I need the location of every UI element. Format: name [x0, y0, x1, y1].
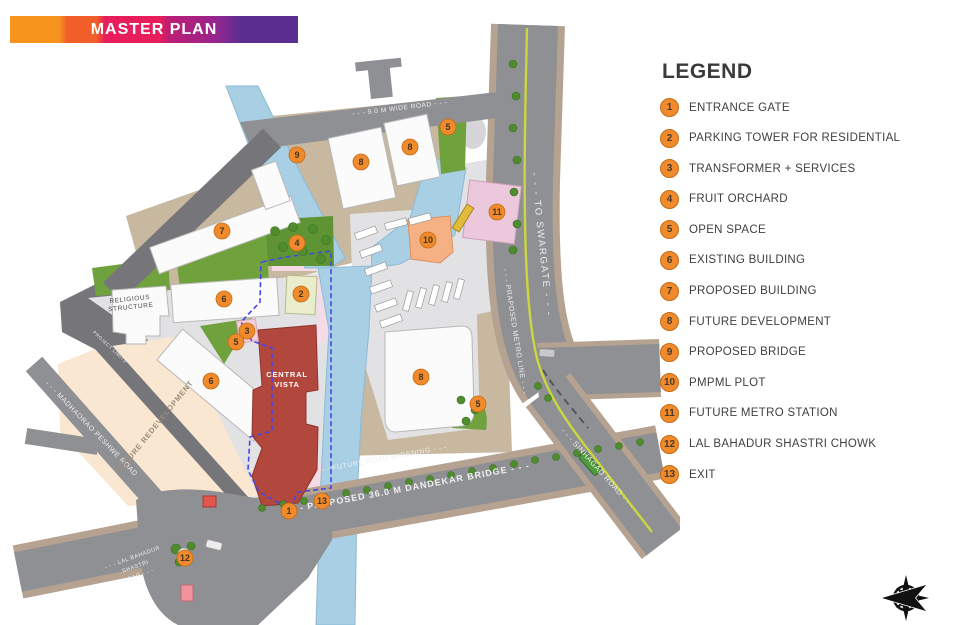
legend-marker-1: 1 — [660, 98, 679, 117]
legend-marker-2: 2 — [660, 129, 679, 148]
road-stub-north — [355, 58, 405, 101]
svg-text:4: 4 — [294, 238, 299, 248]
map-marker-13: 13 — [314, 493, 330, 509]
map-marker-6: 6 — [203, 373, 219, 389]
legend-item-2: 2PARKING TOWER FOR RESIDENTIAL — [660, 129, 950, 148]
legend-item-1: 1ENTRANCE GATE — [660, 98, 950, 117]
legend-item-11: 11FUTURE METRO STATION — [660, 404, 950, 423]
svg-text:8: 8 — [407, 142, 412, 152]
legend-item-label: PROPOSED BRIDGE — [689, 346, 806, 358]
svg-text:6: 6 — [221, 294, 226, 304]
master-plan-page: MASTER PLAN — [0, 0, 957, 625]
map-marker-11: 11 — [489, 204, 505, 220]
east-branch-road — [538, 368, 660, 372]
label-central-vista-1: CENTRAL — [266, 370, 307, 379]
legend-marker-7: 7 — [660, 282, 679, 301]
legend-item-label: EXISTING BUILDING — [689, 254, 805, 266]
legend-list: 1ENTRANCE GATE2PARKING TOWER FOR RESIDEN… — [660, 98, 950, 484]
map-marker-8: 8 — [353, 154, 369, 170]
map-marker-8: 8 — [402, 139, 418, 155]
map-marker-10: 10 — [420, 232, 436, 248]
legend-marker-12: 12 — [660, 435, 679, 454]
legend-marker-5: 5 — [660, 220, 679, 239]
svg-text:8: 8 — [358, 157, 363, 167]
svg-text:5: 5 — [475, 399, 480, 409]
legend-marker-3: 3 — [660, 159, 679, 178]
legend-item-12: 12LAL BAHADUR SHASTRI CHOWK — [660, 435, 950, 454]
red-kiosk-1 — [203, 496, 216, 507]
gray-car — [539, 348, 556, 357]
legend-item-6: 6EXISTING BUILDING — [660, 251, 950, 270]
map-marker-12: 12 — [177, 550, 193, 566]
map-marker-9: 9 — [289, 147, 305, 163]
madhaorao-stub — [26, 436, 98, 447]
legend-item-label: FUTURE METRO STATION — [689, 407, 838, 419]
legend-item-9: 9PROPOSED BRIDGE — [660, 343, 950, 362]
svg-text:5: 5 — [445, 122, 450, 132]
map-marker-7: 7 — [214, 223, 230, 239]
legend-item-label: TRANSFORMER + SERVICES — [689, 163, 855, 175]
legend-heading: LEGEND — [662, 60, 950, 84]
legend-item-label: FUTURE DEVELOPMENT — [689, 316, 831, 328]
legend-item-label: EXIT — [689, 469, 716, 481]
svg-text:2: 2 — [298, 289, 303, 299]
legend-item-label: PMPML PLOT — [689, 377, 766, 389]
legend-marker-8: 8 — [660, 312, 679, 331]
legend-item-label: ENTRANCE GATE — [689, 102, 790, 114]
svg-text:12: 12 — [180, 553, 190, 563]
legend-item-10: 10PMPML PLOT — [660, 373, 950, 392]
legend-marker-11: 11 — [660, 404, 679, 423]
legend-item-13: 13EXIT — [660, 465, 950, 484]
north-compass-icon — [870, 565, 940, 625]
svg-text:13: 13 — [317, 496, 327, 506]
legend-item-4: 4FRUIT ORCHARD — [660, 190, 950, 209]
map-marker-2: 2 — [293, 286, 309, 302]
legend-item-label: PARKING TOWER FOR RESIDENTIAL — [689, 132, 900, 144]
legend-item-7: 7PROPOSED BUILDING — [660, 282, 950, 301]
building-8-future-c — [385, 326, 474, 432]
svg-text:3: 3 — [244, 326, 249, 336]
legend-item-5: 5OPEN SPACE — [660, 220, 950, 239]
map-marker-5: 5 — [440, 119, 456, 135]
map-marker-4: 4 — [289, 235, 305, 251]
legend-item-label: PROPOSED BUILDING — [689, 285, 817, 297]
svg-text:9: 9 — [294, 150, 299, 160]
map-marker-5: 5 — [228, 334, 244, 350]
map-marker-1: 1 — [281, 503, 297, 519]
svg-text:8: 8 — [418, 372, 423, 382]
legend-marker-13: 13 — [660, 465, 679, 484]
map-marker-6: 6 — [216, 291, 232, 307]
svg-text:1: 1 — [286, 506, 291, 516]
legend-item-label: OPEN SPACE — [689, 224, 766, 236]
map-marker-8: 8 — [413, 369, 429, 385]
legend-item-8: 8FUTURE DEVELOPMENT — [660, 312, 950, 331]
label-central-vista-2: VISTA — [274, 380, 300, 389]
map-marker-5: 5 — [470, 396, 486, 412]
svg-text:10: 10 — [423, 235, 433, 245]
legend-marker-6: 6 — [660, 251, 679, 270]
legend-marker-10: 10 — [660, 373, 679, 392]
svg-text:11: 11 — [492, 207, 502, 217]
svg-text:7: 7 — [219, 226, 224, 236]
legend-item-label: LAL BAHADUR SHASTRI CHOWK — [689, 438, 876, 450]
svg-text:6: 6 — [208, 376, 213, 386]
red-kiosk-2 — [181, 585, 193, 601]
legend-item-label: FRUIT ORCHARD — [689, 193, 788, 205]
legend-item-3: 3TRANSFORMER + SERVICES — [660, 159, 950, 178]
site-map: - - - 9.0 M WIDE ROAD - - -- - - TO SWAR… — [0, 0, 680, 625]
svg-text:5: 5 — [233, 337, 238, 347]
legend-marker-4: 4 — [660, 190, 679, 209]
legend-panel: LEGEND 1ENTRANCE GATE2PARKING TOWER FOR … — [660, 60, 950, 496]
legend-marker-9: 9 — [660, 343, 679, 362]
